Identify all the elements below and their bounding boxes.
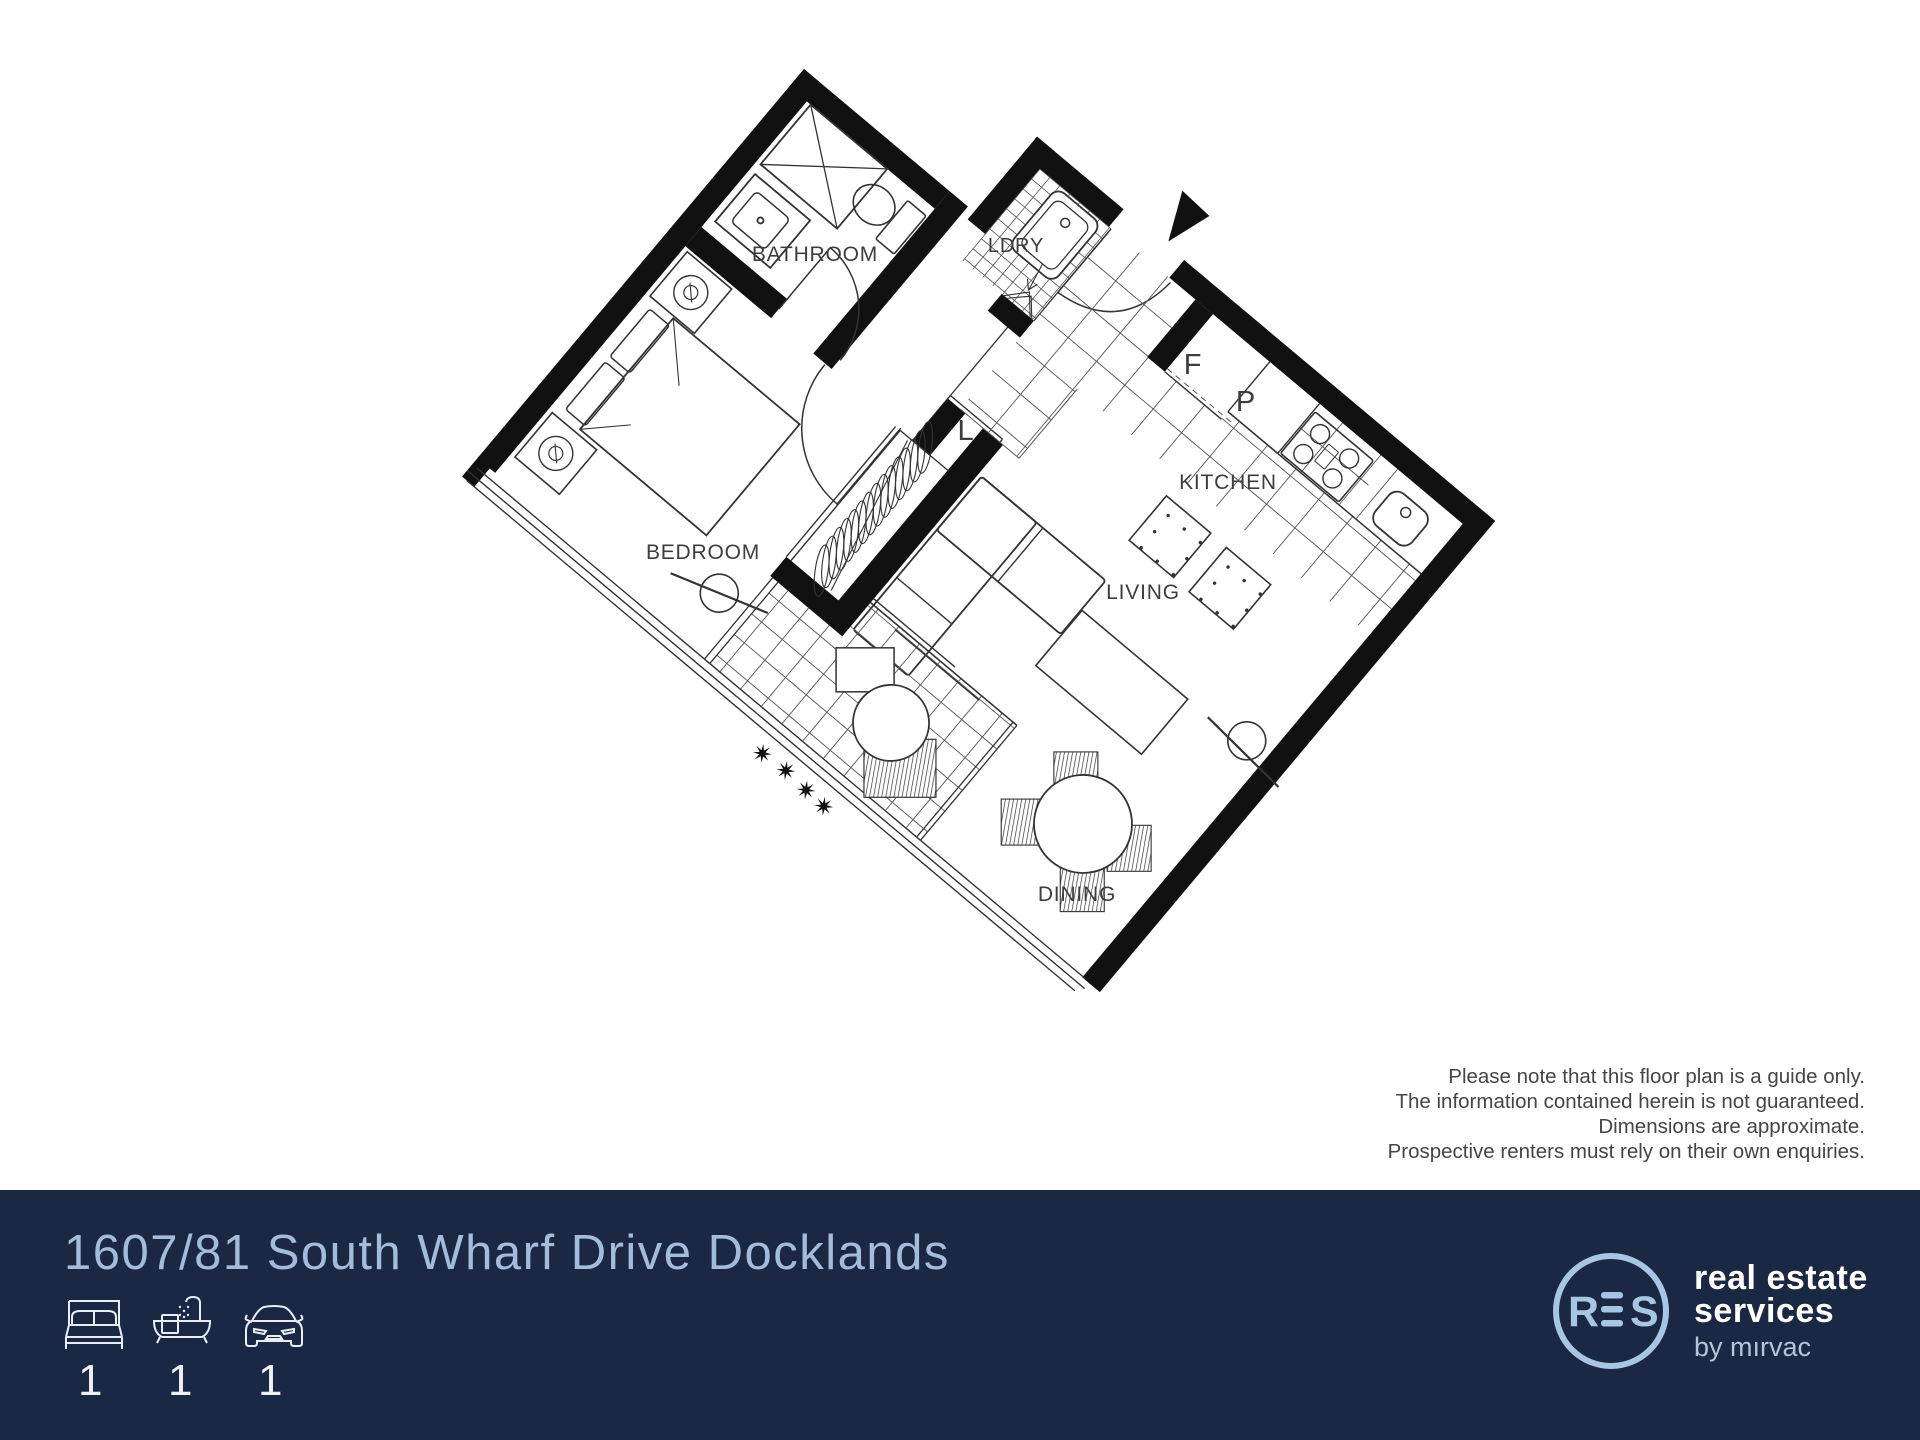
svg-text:BEDROOM: BEDROOM xyxy=(646,541,760,564)
svg-text:R: R xyxy=(1568,1288,1599,1336)
svg-text:KITCHEN: KITCHEN xyxy=(1179,471,1277,494)
svg-text:LIVING: LIVING xyxy=(1106,581,1180,604)
svg-text:LDRY: LDRY xyxy=(988,235,1044,257)
svg-text:DINING: DINING xyxy=(1038,883,1116,906)
svg-text:L: L xyxy=(958,415,975,447)
svg-text:F: F xyxy=(1184,349,1203,381)
svg-text:S: S xyxy=(1630,1288,1659,1336)
svg-text:BATHROOM: BATHROOM xyxy=(752,243,878,266)
svg-text:P: P xyxy=(1236,386,1256,418)
